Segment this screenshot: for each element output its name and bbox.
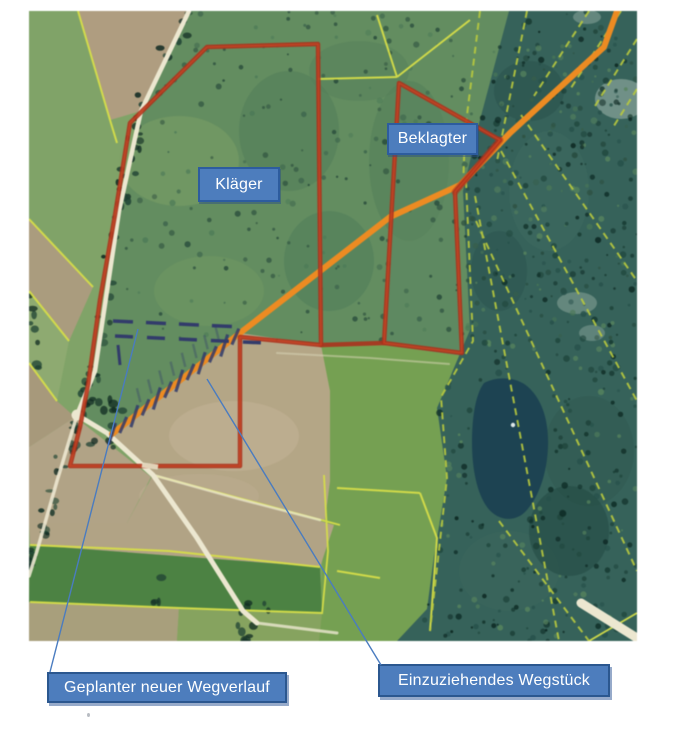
callout-planned-path: Geplanter neuer Wegverlauf <box>47 672 287 703</box>
map-exhibit-page: Kläger Beklagter Geplanter neuer Wegverl… <box>0 0 674 756</box>
aerial-photo <box>29 11 637 641</box>
callout-planned-path-text: Geplanter neuer Wegverlauf <box>64 679 270 697</box>
callout-withdrawn-path: Einzuziehendes Wegstück <box>378 664 610 697</box>
road-gap <box>142 465 158 467</box>
parcel-label-beklagter: Beklagter <box>387 123 478 155</box>
stray-mark <box>87 713 90 717</box>
parcel-label-klaeger: Kläger <box>198 167 280 202</box>
parcel-label-klaeger-text: Kläger <box>215 176 262 194</box>
parcel-label-beklagter-text: Beklagter <box>398 130 467 148</box>
parcel-connector <box>321 343 384 345</box>
callout-withdrawn-path-text: Einzuziehendes Wegstück <box>398 672 590 690</box>
